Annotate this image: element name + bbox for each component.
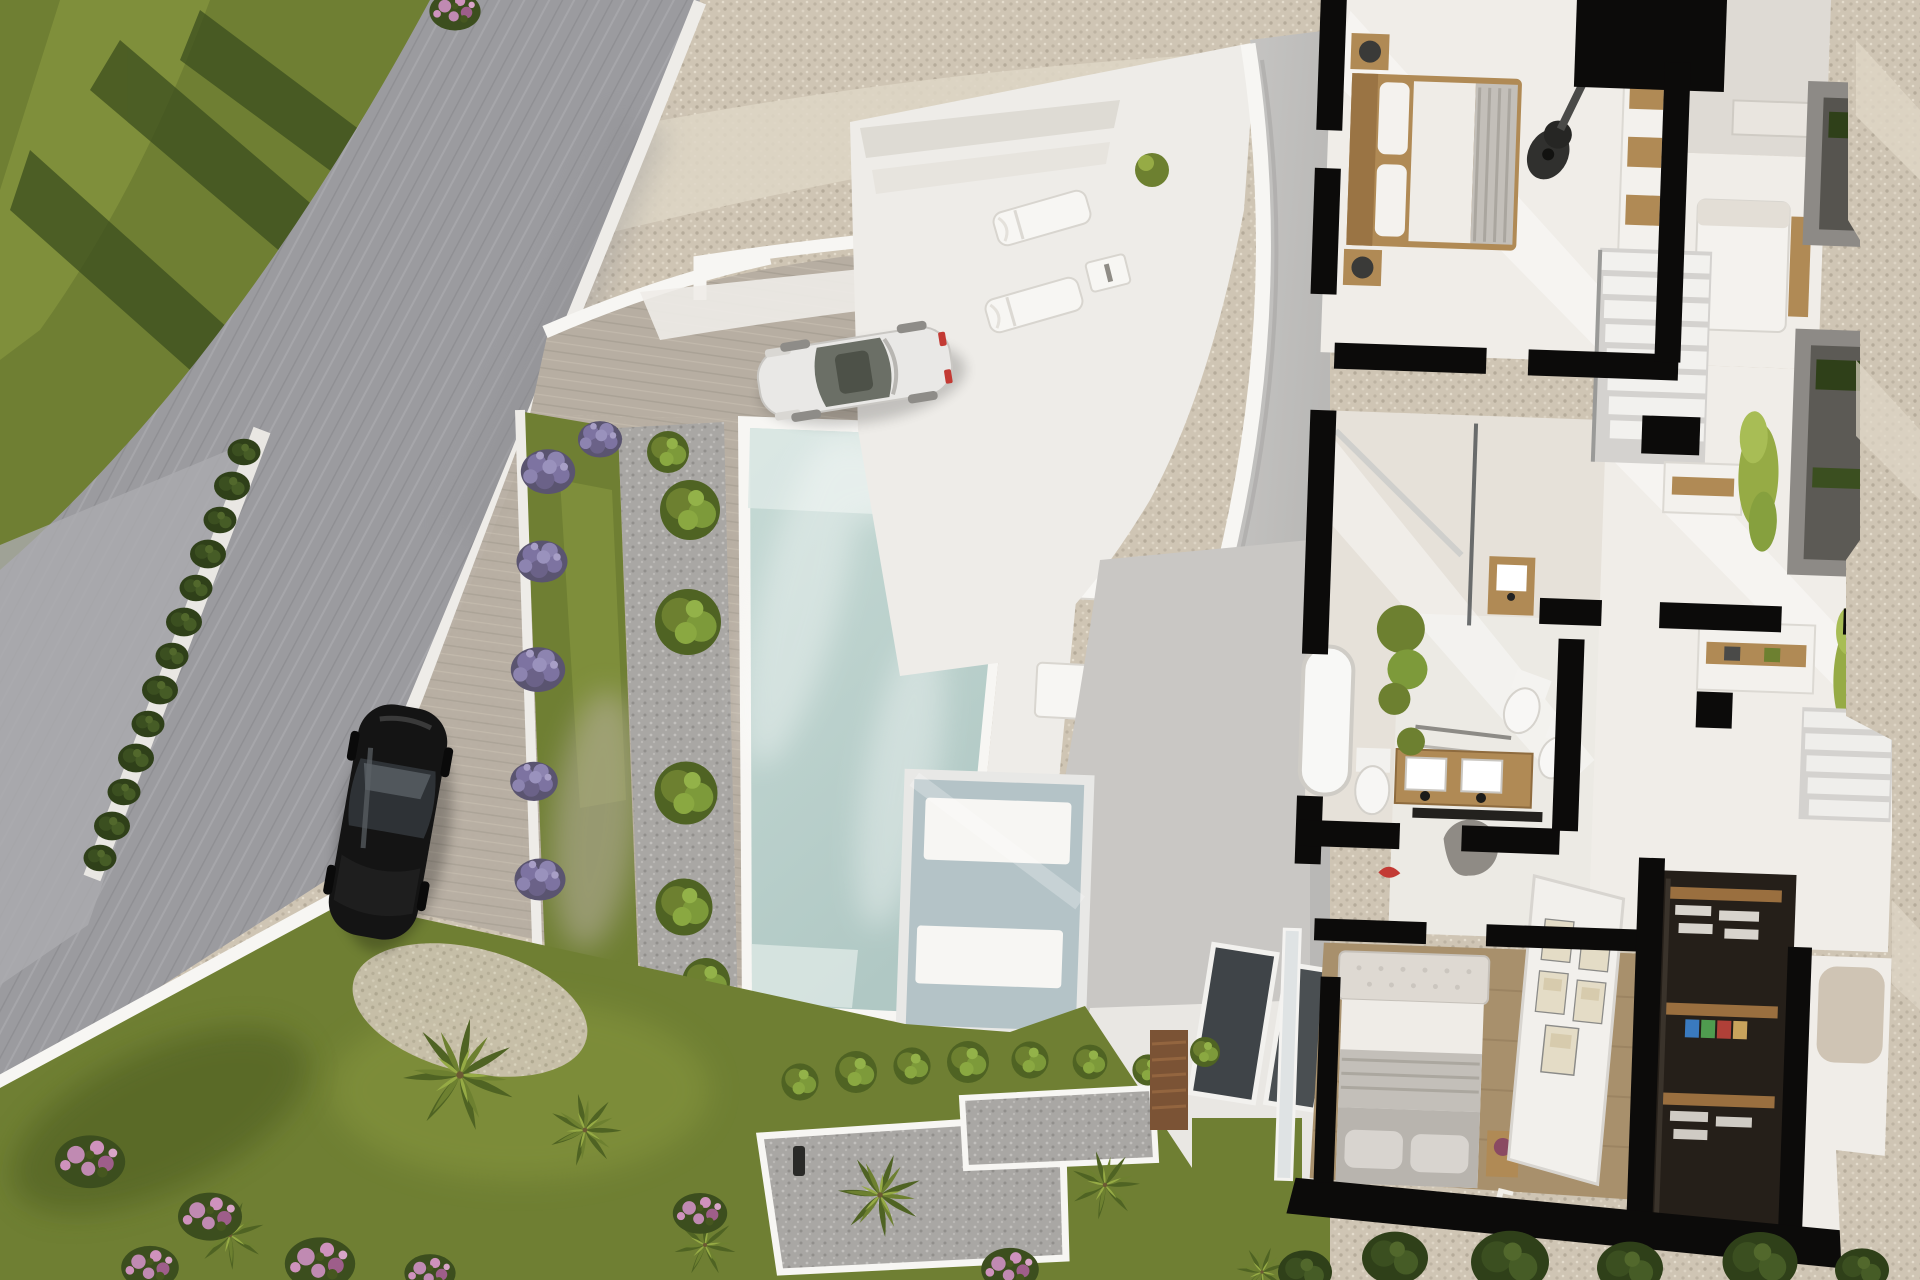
planter-shrub [835, 1051, 877, 1093]
picture-frame [1572, 979, 1606, 1024]
bathtub [1299, 646, 1354, 796]
hedge-clipped [190, 540, 226, 569]
gravel-bed-2 [962, 1088, 1156, 1168]
hedge-clipped [166, 608, 202, 637]
wall-pier-2 [1641, 415, 1700, 455]
planter-shrub [893, 1047, 930, 1084]
hedge-clipped [156, 643, 189, 669]
planter-shrub [1190, 1037, 1220, 1067]
bed-1-duvet [1408, 81, 1476, 243]
round-shrub [655, 762, 718, 825]
picture-frame [1535, 970, 1569, 1015]
hedge-clipped [204, 507, 237, 533]
hedge-clipped [214, 472, 250, 501]
bed-3-pillows [1697, 199, 1790, 228]
flower-bush-purple [511, 647, 565, 692]
hedge-clipped [180, 575, 213, 601]
hedge-clipped [142, 676, 178, 705]
flowering-shrub-pink [55, 1135, 125, 1188]
garden-lamp [793, 1146, 805, 1176]
wall-h3-a [1297, 820, 1400, 850]
hedge-clipped [108, 779, 141, 805]
wall-h2-a [1539, 598, 1602, 626]
wall-left-b [1311, 168, 1341, 295]
flower-bush-purple [510, 762, 558, 801]
toilet-1 [1354, 748, 1390, 815]
wardrobe-floor [1650, 870, 1797, 1240]
wall-mass-top [1574, 0, 1727, 92]
flowering-shrub-pink [673, 1193, 727, 1234]
round-shrub [647, 431, 689, 473]
wall-h1-a [1334, 343, 1487, 374]
wall-h2-b [1659, 602, 1782, 632]
round-shrub [656, 879, 713, 936]
hedge-clipped [118, 744, 154, 773]
wall-pier-1 [1696, 691, 1733, 728]
planter-shrub [1011, 1041, 1048, 1078]
bed-2-pillow-a [1344, 1129, 1403, 1169]
skylight [895, 769, 1094, 1041]
flower-bush-purple [578, 421, 622, 457]
round-shrub [660, 480, 720, 540]
bed-2-pillow-b [1410, 1134, 1469, 1174]
villa-floor-plan: E [1273, 0, 1920, 1273]
vanity-small [1487, 556, 1535, 616]
sideboard-1 [1663, 462, 1743, 515]
bed-1-pillow-a [1377, 82, 1409, 155]
wall-h3-b [1461, 825, 1560, 854]
shower-bench [1732, 100, 1813, 137]
hedge-clipped [228, 439, 261, 465]
bed-1-pillow-b [1375, 164, 1407, 237]
planter-shrub [1073, 1045, 1108, 1080]
terrace-plant-highlight [1138, 155, 1154, 171]
sideboard-2 [1697, 621, 1815, 693]
villa-aerial-render: E [0, 0, 1920, 1280]
planter-shrub [781, 1063, 818, 1100]
picture-frame [1540, 1024, 1579, 1076]
wall-left-a [1316, 0, 1347, 131]
planter-shrub [947, 1041, 989, 1083]
right-room-sofa [1816, 966, 1885, 1064]
hedge-clipped [84, 845, 117, 871]
hedge-clipped [132, 711, 165, 737]
daybed-below-glass-2 [915, 925, 1063, 988]
flower-bush-purple [515, 859, 566, 901]
hedge-clipped [94, 812, 130, 841]
flower-bush-purple [517, 541, 568, 583]
bed-2-headboard [1338, 951, 1490, 1004]
flowering-shrub-pink [178, 1193, 242, 1241]
flower-bush-purple [521, 449, 575, 494]
round-shrub [655, 589, 721, 655]
white-car-sunroof [834, 350, 874, 395]
wall-h4-a [1314, 918, 1427, 944]
